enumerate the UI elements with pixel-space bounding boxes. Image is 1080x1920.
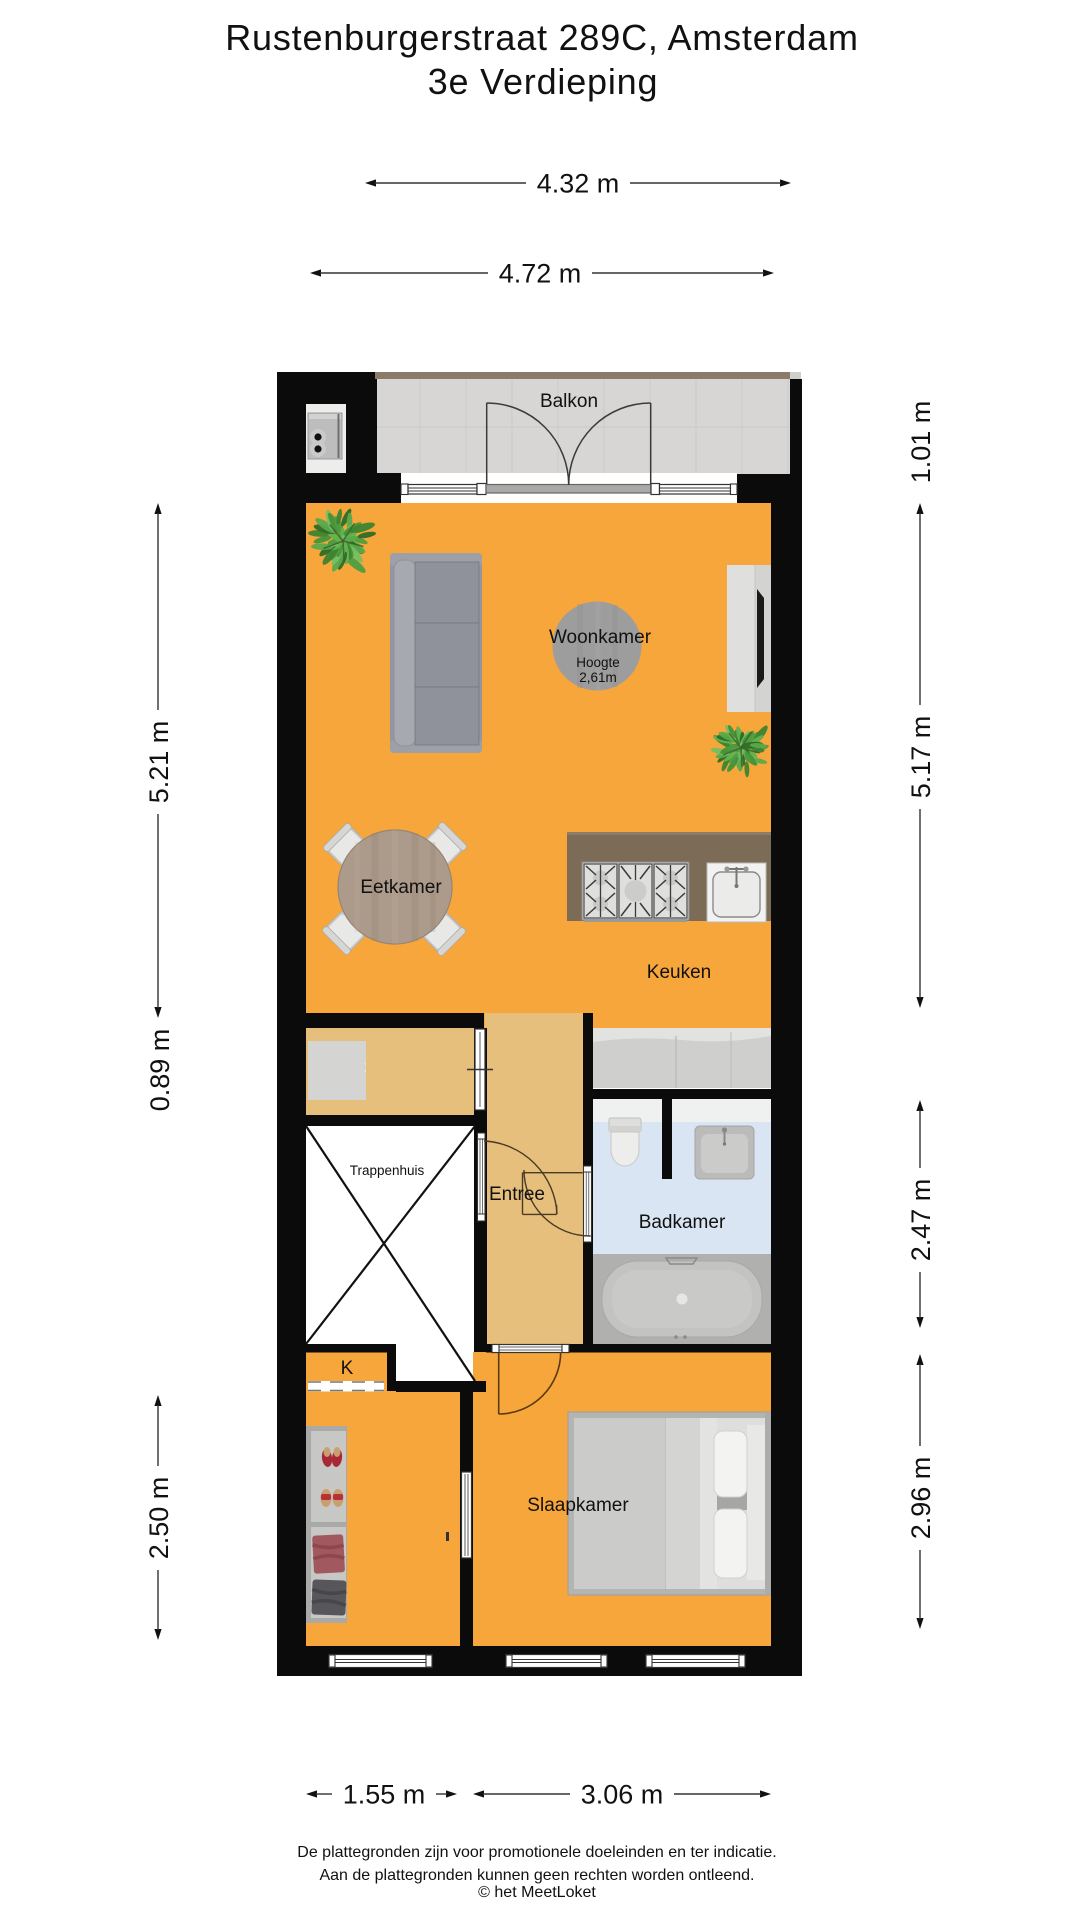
svg-text:© het MeetLoket: © het MeetLoket <box>478 1884 596 1901</box>
svg-text:Badkamer: Badkamer <box>639 1212 726 1233</box>
svg-text:2.47 m: 2.47 m <box>906 1179 936 1262</box>
svg-text:Trappenhuis: Trappenhuis <box>350 1163 425 1178</box>
svg-text:4.32 m: 4.32 m <box>537 169 620 199</box>
svg-text:4.72 m: 4.72 m <box>499 259 582 289</box>
svg-text:1.55 m: 1.55 m <box>343 1780 426 1810</box>
svg-text:Rustenburgerstraat 289C, Amste: Rustenburgerstraat 289C, Amsterdam <box>225 17 859 58</box>
svg-text:2.50 m: 2.50 m <box>144 1477 174 1560</box>
svg-text:Eetkamer: Eetkamer <box>360 877 442 898</box>
svg-text:De plattegronden zijn voor pro: De plattegronden zijn voor promotionele … <box>297 1844 776 1861</box>
svg-text:2,61m: 2,61m <box>579 670 617 685</box>
svg-text:3e Verdieping: 3e Verdieping <box>428 61 659 102</box>
svg-text:1.01 m: 1.01 m <box>906 401 936 484</box>
svg-text:5.21 m: 5.21 m <box>144 721 174 804</box>
svg-text:Entree: Entree <box>489 1184 545 1205</box>
svg-text:Hoogte: Hoogte <box>576 655 620 670</box>
svg-text:Balkon: Balkon <box>540 391 598 412</box>
svg-text:K: K <box>341 1358 354 1379</box>
svg-text:5.17 m: 5.17 m <box>906 716 936 799</box>
svg-text:Keuken: Keuken <box>647 962 711 983</box>
svg-text:3.06 m: 3.06 m <box>581 1780 664 1810</box>
svg-text:2.96 m: 2.96 m <box>906 1457 936 1540</box>
svg-text:0.89 m: 0.89 m <box>145 1029 175 1112</box>
svg-text:Aan de plattegronden kunnen ge: Aan de plattegronden kunnen geen rechten… <box>319 1867 754 1884</box>
svg-text:Woonkamer: Woonkamer <box>549 627 652 648</box>
svg-text:Slaapkamer: Slaapkamer <box>527 1495 629 1516</box>
